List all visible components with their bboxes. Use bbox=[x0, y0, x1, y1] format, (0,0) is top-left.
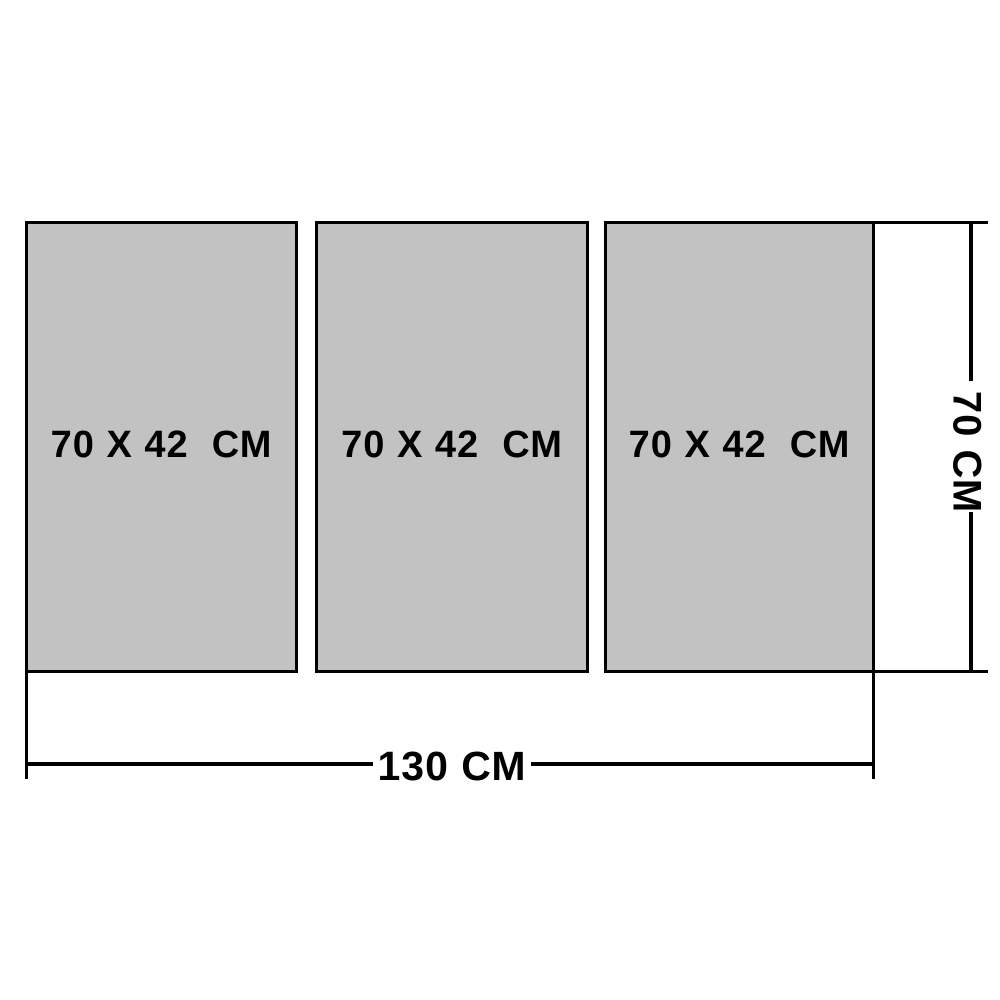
panel-center: 70 X 42 СМ bbox=[315, 221, 589, 673]
panel-center-size-label: 70 X 42 СМ bbox=[341, 424, 563, 467]
width-dimension-line-right bbox=[531, 762, 875, 766]
total-height-label: 70 СМ bbox=[944, 391, 989, 513]
width-dimension-line-left bbox=[26, 762, 373, 766]
triptych-dimension-diagram: 70 X 42 СМ 70 X 42 СМ 70 X 42 СМ 70 СМ 1… bbox=[0, 0, 1000, 1000]
panel-left-size-label: 70 X 42 СМ bbox=[51, 424, 273, 467]
total-width-label: 130 СМ bbox=[373, 743, 531, 789]
panel-right-size-label: 70 X 42 СМ bbox=[629, 424, 851, 467]
panel-right: 70 X 42 СМ bbox=[604, 221, 875, 673]
panel-left: 70 X 42 СМ bbox=[25, 221, 298, 673]
height-dimension-line-lower bbox=[969, 512, 973, 671]
height-dimension-line-upper bbox=[969, 222, 973, 381]
